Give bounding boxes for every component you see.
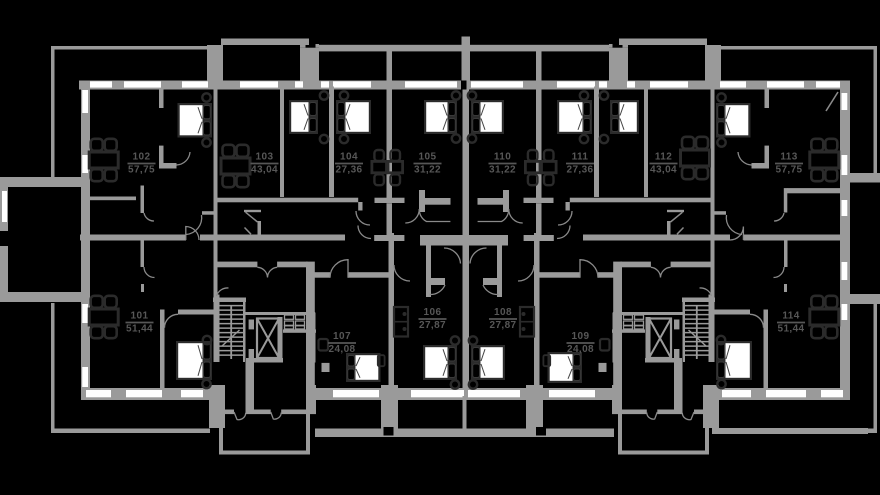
svg-text:27,87: 27,87 (489, 320, 516, 331)
svg-text:31,22: 31,22 (489, 165, 516, 176)
svg-text:43,04: 43,04 (650, 165, 677, 176)
svg-text:43,04: 43,04 (251, 165, 278, 176)
svg-text:31,22: 31,22 (414, 165, 441, 176)
svg-text:103: 103 (256, 151, 274, 162)
svg-text:27,36: 27,36 (566, 165, 593, 176)
svg-text:110: 110 (494, 151, 511, 162)
svg-text:57,75: 57,75 (775, 165, 802, 176)
svg-text:51,44: 51,44 (126, 324, 153, 335)
svg-text:107: 107 (333, 331, 351, 342)
svg-text:101: 101 (131, 310, 149, 321)
svg-text:51,44: 51,44 (777, 324, 804, 335)
svg-text:102: 102 (133, 151, 151, 162)
svg-text:108: 108 (494, 307, 512, 318)
svg-text:111: 111 (572, 151, 589, 162)
svg-text:109: 109 (572, 331, 590, 342)
svg-text:27,36: 27,36 (335, 165, 362, 176)
svg-text:105: 105 (419, 151, 437, 162)
svg-text:113: 113 (780, 151, 797, 162)
svg-text:27,87: 27,87 (419, 320, 446, 331)
svg-text:24,08: 24,08 (328, 344, 355, 355)
svg-text:114: 114 (782, 310, 799, 321)
svg-text:104: 104 (340, 151, 358, 162)
svg-text:106: 106 (424, 307, 442, 318)
svg-text:112: 112 (655, 151, 672, 162)
svg-text:57,75: 57,75 (128, 165, 155, 176)
svg-text:24,08: 24,08 (567, 344, 594, 355)
